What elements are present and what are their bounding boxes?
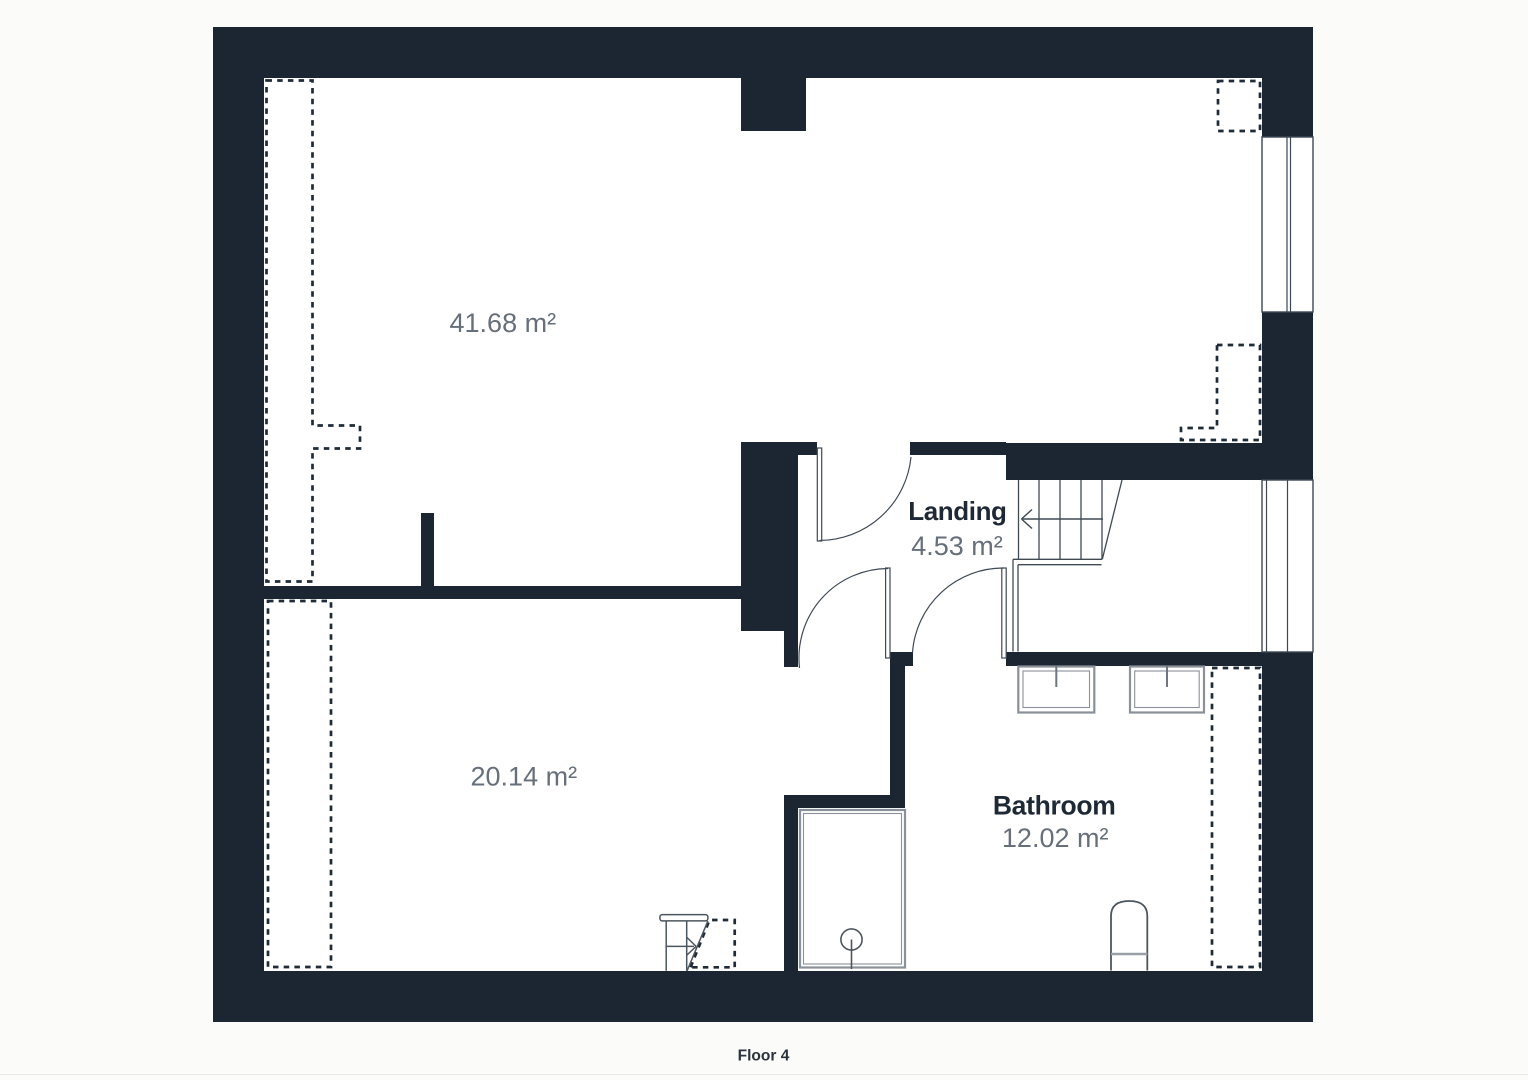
svg-text:12.02 m²: 12.02 m² (1002, 823, 1109, 853)
svg-text:Landing: Landing (908, 496, 1006, 526)
svg-text:20.14 m²: 20.14 m² (471, 762, 578, 792)
svg-text:Bathroom: Bathroom (993, 791, 1116, 821)
svg-text:4.53 m²: 4.53 m² (911, 531, 1003, 561)
svg-text:Floor 4: Floor 4 (738, 1048, 790, 1065)
svg-text:41.68 m²: 41.68 m² (450, 308, 557, 338)
